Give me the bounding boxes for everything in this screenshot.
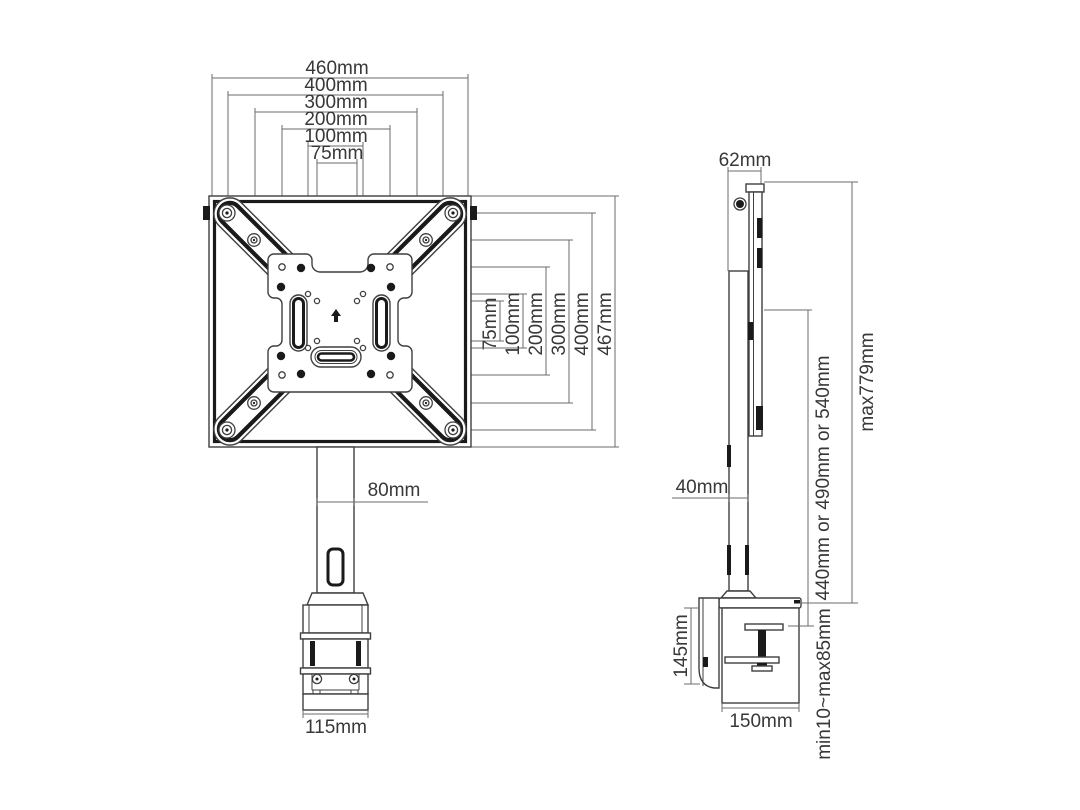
dim-label: 400mm bbox=[572, 292, 593, 355]
technical-drawing: 460mm 400mm 300mm 200mm 100mm 75mm bbox=[0, 0, 1080, 810]
dim-clamp-height: 145mm bbox=[671, 608, 700, 684]
dim-column-height: 440mm or 490mm or 540mm bbox=[764, 310, 834, 626]
dim-label: 115mm bbox=[305, 717, 367, 738]
clamp-front: 115mm bbox=[301, 593, 371, 738]
side-tab-left bbox=[203, 206, 210, 220]
dim-label: 62mm bbox=[719, 150, 772, 171]
corner-screw bbox=[219, 422, 235, 438]
corner-screw bbox=[445, 422, 461, 438]
mid-screw bbox=[420, 397, 433, 410]
clamp-foot bbox=[752, 666, 772, 671]
dim-label: 40mm bbox=[676, 477, 729, 498]
dim-label: 100mm bbox=[503, 292, 524, 355]
pole-front: 80mm bbox=[317, 447, 428, 593]
corner-screw bbox=[445, 205, 461, 221]
dim-label: 75mm bbox=[480, 298, 501, 351]
clamp-pad bbox=[745, 624, 783, 630]
dim-label: 75mm bbox=[311, 143, 364, 164]
clamp-side bbox=[699, 598, 801, 703]
dim-clamp-depth: 150mm bbox=[722, 703, 799, 732]
clamp-screw bbox=[349, 674, 358, 683]
dim-head-depth: 62mm bbox=[719, 150, 772, 271]
vertical-slot-right bbox=[373, 295, 390, 351]
dim-clamp-width: 115mm bbox=[303, 710, 368, 738]
dim-label: 145mm bbox=[671, 614, 692, 677]
plate-top-cap bbox=[746, 184, 764, 192]
dim-label: 80mm bbox=[368, 480, 421, 501]
dim-desk-thickness: min10~max85mm bbox=[814, 608, 835, 760]
vertical-slot-left bbox=[290, 295, 307, 351]
drawing-canvas: 460mm 400mm 300mm 200mm 100mm 75mm bbox=[0, 0, 1080, 810]
side-view: 62mm bbox=[671, 150, 878, 760]
pole-base-flare bbox=[721, 591, 756, 598]
clamp-arm bbox=[725, 657, 779, 663]
dim-label: 440mm or 490mm or 540mm bbox=[813, 356, 834, 601]
corner-screw bbox=[219, 205, 235, 221]
side-tab-right bbox=[470, 206, 477, 220]
dim-label: 467mm bbox=[595, 292, 616, 355]
dim-label: min10~max85mm bbox=[814, 608, 835, 760]
clamp-front-lip bbox=[699, 598, 719, 688]
dim-label: max779mm bbox=[857, 332, 878, 431]
dim-label: 200mm bbox=[526, 292, 547, 355]
center-plate bbox=[268, 254, 412, 392]
mid-screw bbox=[420, 234, 433, 247]
front-view: 460mm 400mm 300mm 200mm 100mm 75mm bbox=[203, 58, 619, 738]
bottom-oval-slot bbox=[311, 347, 361, 367]
mid-screw bbox=[248, 234, 261, 247]
clamp-top-plate bbox=[719, 598, 801, 608]
clamp-screw bbox=[312, 674, 321, 683]
tilt-knob bbox=[734, 198, 746, 210]
mid-screw bbox=[248, 397, 261, 410]
dim-label: 150mm bbox=[729, 711, 792, 732]
dim-label: 300mm bbox=[549, 292, 570, 355]
